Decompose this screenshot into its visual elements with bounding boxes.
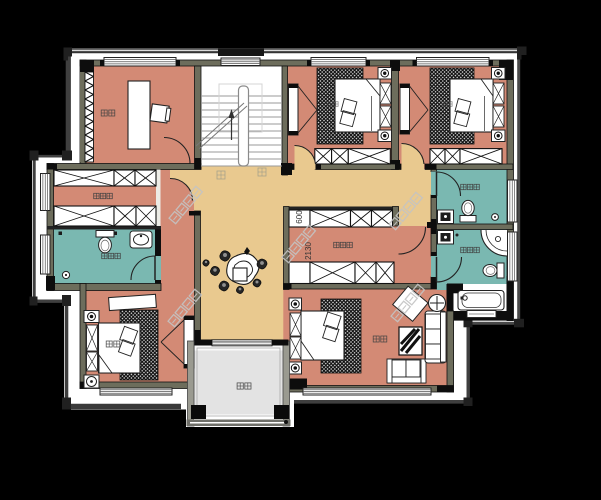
svg-text:600: 600 [295, 210, 304, 224]
svg-text:2130: 2130 [304, 242, 313, 260]
